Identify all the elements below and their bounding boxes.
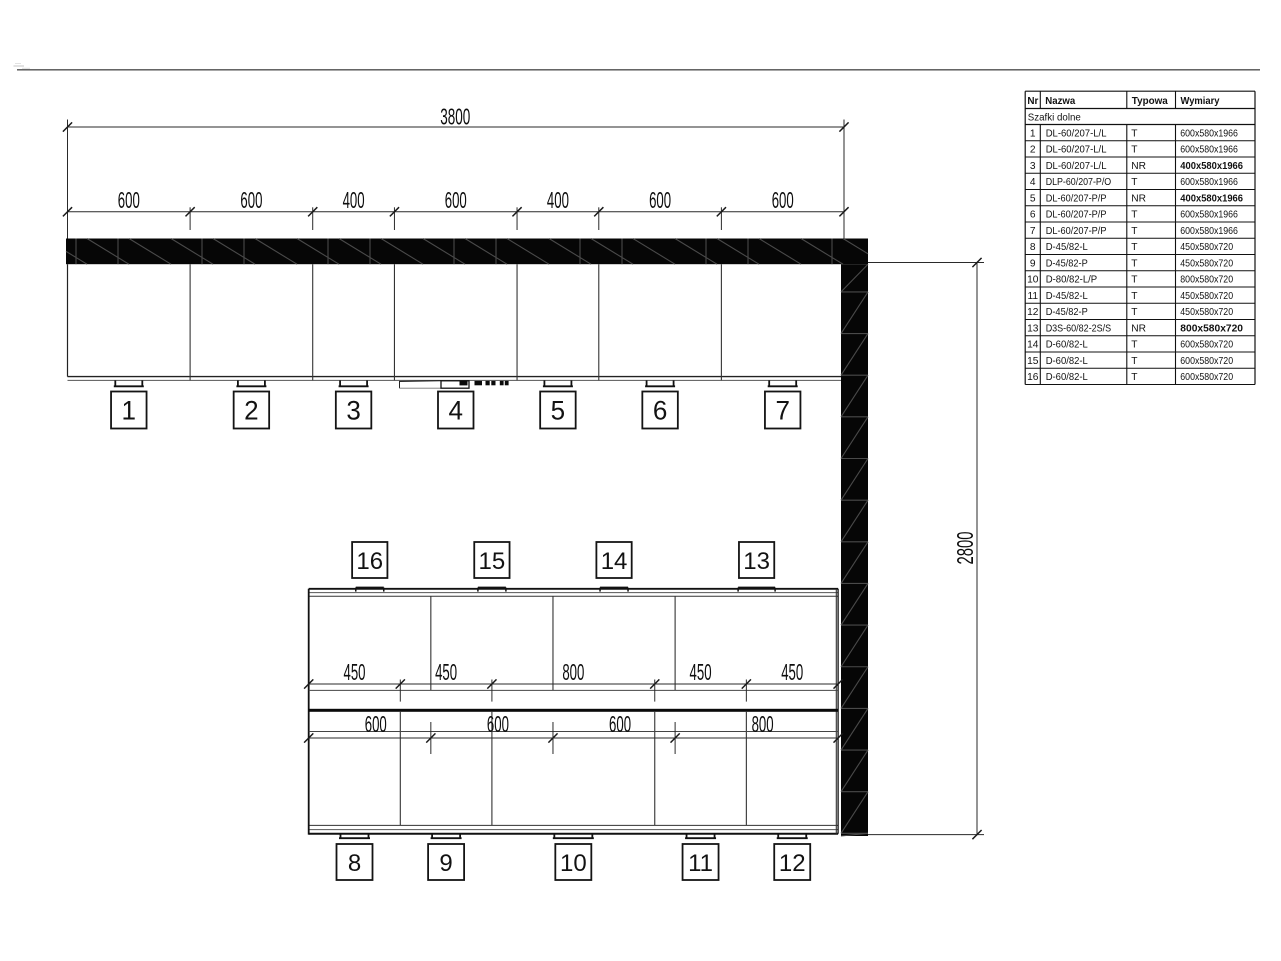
svg-text:D-60/82-L: D-60/82-L [1046,372,1088,383]
svg-text:600x580x720: 600x580x720 [1180,356,1233,367]
svg-text:15: 15 [1027,356,1039,367]
svg-text:800x580x720: 800x580x720 [1180,275,1233,286]
svg-text:DL-60/207-L/L: DL-60/207-L/L [1046,145,1107,156]
svg-text:D-45/82-L: D-45/82-L [1046,242,1088,253]
svg-text:D-80/82-L/P: D-80/82-L/P [1046,275,1098,286]
svg-text:Szafki dolne: Szafki dolne [1028,113,1081,124]
svg-text:11: 11 [688,850,713,877]
svg-text:1: 1 [1030,128,1036,139]
svg-text:DL-60/207-L/L: DL-60/207-L/L [1046,128,1107,139]
svg-text:8: 8 [348,850,361,877]
svg-text:600x580x1966: 600x580x1966 [1180,177,1238,188]
svg-text:600x580x1966: 600x580x1966 [1180,145,1238,156]
svg-text:600x580x1966: 600x580x1966 [1180,226,1238,237]
svg-text:T: T [1131,372,1137,383]
svg-text:DLP-60/207-P/O: DLP-60/207-P/O [1046,177,1112,188]
svg-text:9: 9 [439,850,452,877]
svg-text:2: 2 [244,396,259,426]
svg-text:4: 4 [1030,177,1036,188]
svg-text:T: T [1131,177,1137,188]
svg-text:T: T [1131,275,1137,286]
svg-text:600: 600 [445,187,467,213]
svg-text:450: 450 [435,659,457,685]
svg-text:Typowa: Typowa [1132,96,1168,107]
svg-text:13: 13 [1027,323,1039,334]
svg-text:DL-60/207-L/L: DL-60/207-L/L [1046,161,1107,172]
svg-text:600x580x720: 600x580x720 [1180,372,1233,383]
svg-text:T: T [1131,340,1137,351]
svg-text:Wymiary: Wymiary [1181,96,1220,107]
svg-text:16: 16 [356,548,383,575]
svg-text:600: 600 [365,711,387,737]
svg-text:D-45/82-L: D-45/82-L [1046,291,1088,302]
svg-text:600x580x720: 600x580x720 [1180,340,1233,351]
svg-text:600x580x1966: 600x580x1966 [1180,128,1238,139]
svg-text:11: 11 [1027,291,1038,302]
svg-text:D-45/82-P: D-45/82-P [1046,258,1088,269]
svg-text:600: 600 [649,187,671,213]
svg-text:13: 13 [743,548,770,575]
svg-text:D3S-60/82-2S/S: D3S-60/82-2S/S [1046,323,1112,334]
svg-text:450: 450 [781,659,803,685]
svg-text:1: 1 [122,396,137,426]
svg-text:3: 3 [346,396,361,426]
svg-text:D-45/82-P: D-45/82-P [1046,307,1088,318]
svg-text:4: 4 [448,396,463,426]
svg-text:T: T [1131,226,1137,237]
svg-text:T: T [1131,307,1137,318]
svg-text:D-60/82-L: D-60/82-L [1046,356,1088,367]
svg-text:2: 2 [1030,145,1036,156]
svg-text:16: 16 [1027,372,1039,383]
svg-text:8: 8 [1030,242,1036,253]
svg-text:800: 800 [752,711,774,737]
svg-text:T: T [1131,356,1137,367]
svg-text:6: 6 [653,396,668,426]
svg-text:6: 6 [1030,210,1036,221]
svg-text:12: 12 [779,850,806,877]
svg-text:T: T [1131,242,1137,253]
svg-text:450: 450 [690,659,712,685]
svg-text:10: 10 [1027,275,1039,286]
svg-text:400x580x1966: 400x580x1966 [1180,193,1243,204]
svg-text:600: 600 [487,711,509,737]
svg-text:14: 14 [601,548,628,575]
svg-text:NR: NR [1131,193,1146,204]
svg-text:2800: 2800 [952,532,978,565]
svg-text:T: T [1131,210,1137,221]
svg-text:NR: NR [1131,161,1146,172]
svg-text:3: 3 [1030,161,1036,172]
svg-text:400x580x1966: 400x580x1966 [1180,161,1243,172]
svg-text:D-60/82-L: D-60/82-L [1046,340,1088,351]
svg-text:600: 600 [240,187,262,213]
svg-text:5: 5 [1030,193,1036,204]
svg-text:5: 5 [551,396,566,426]
svg-text:450x580x720: 450x580x720 [1180,242,1233,253]
svg-text:DL-60/207-P/P: DL-60/207-P/P [1046,226,1107,237]
svg-text:T: T [1131,291,1137,302]
svg-text:3800: 3800 [440,104,470,130]
svg-text:600: 600 [609,711,631,737]
svg-text:T: T [1131,145,1137,156]
svg-text:450x580x720: 450x580x720 [1180,307,1233,318]
svg-text:7: 7 [775,396,790,426]
svg-text:450x580x720: 450x580x720 [1180,258,1233,269]
svg-text:400: 400 [343,187,365,213]
svg-text:DL-60/207-P/P: DL-60/207-P/P [1046,193,1107,204]
svg-text:NR: NR [1131,323,1146,334]
svg-text:400: 400 [547,187,569,213]
svg-text:600: 600 [772,187,794,213]
svg-text:Nazwa: Nazwa [1045,96,1075,107]
svg-text:12: 12 [1027,307,1039,318]
svg-text:800: 800 [562,659,584,685]
svg-text:7: 7 [1030,226,1036,237]
svg-text:10: 10 [560,850,587,877]
svg-text:T: T [1131,128,1137,139]
svg-text:15: 15 [479,548,506,575]
svg-text:450: 450 [344,659,366,685]
svg-text:600x580x1966: 600x580x1966 [1180,210,1238,221]
svg-text:Nr: Nr [1027,96,1038,107]
svg-text:DL-60/207-P/P: DL-60/207-P/P [1046,210,1107,221]
svg-text:T: T [1131,258,1137,269]
svg-text:800x580x720: 800x580x720 [1180,323,1243,334]
svg-text:9: 9 [1030,258,1036,269]
svg-text:14: 14 [1027,340,1039,351]
svg-text:600: 600 [118,187,140,213]
svg-text:450x580x720: 450x580x720 [1180,291,1233,302]
